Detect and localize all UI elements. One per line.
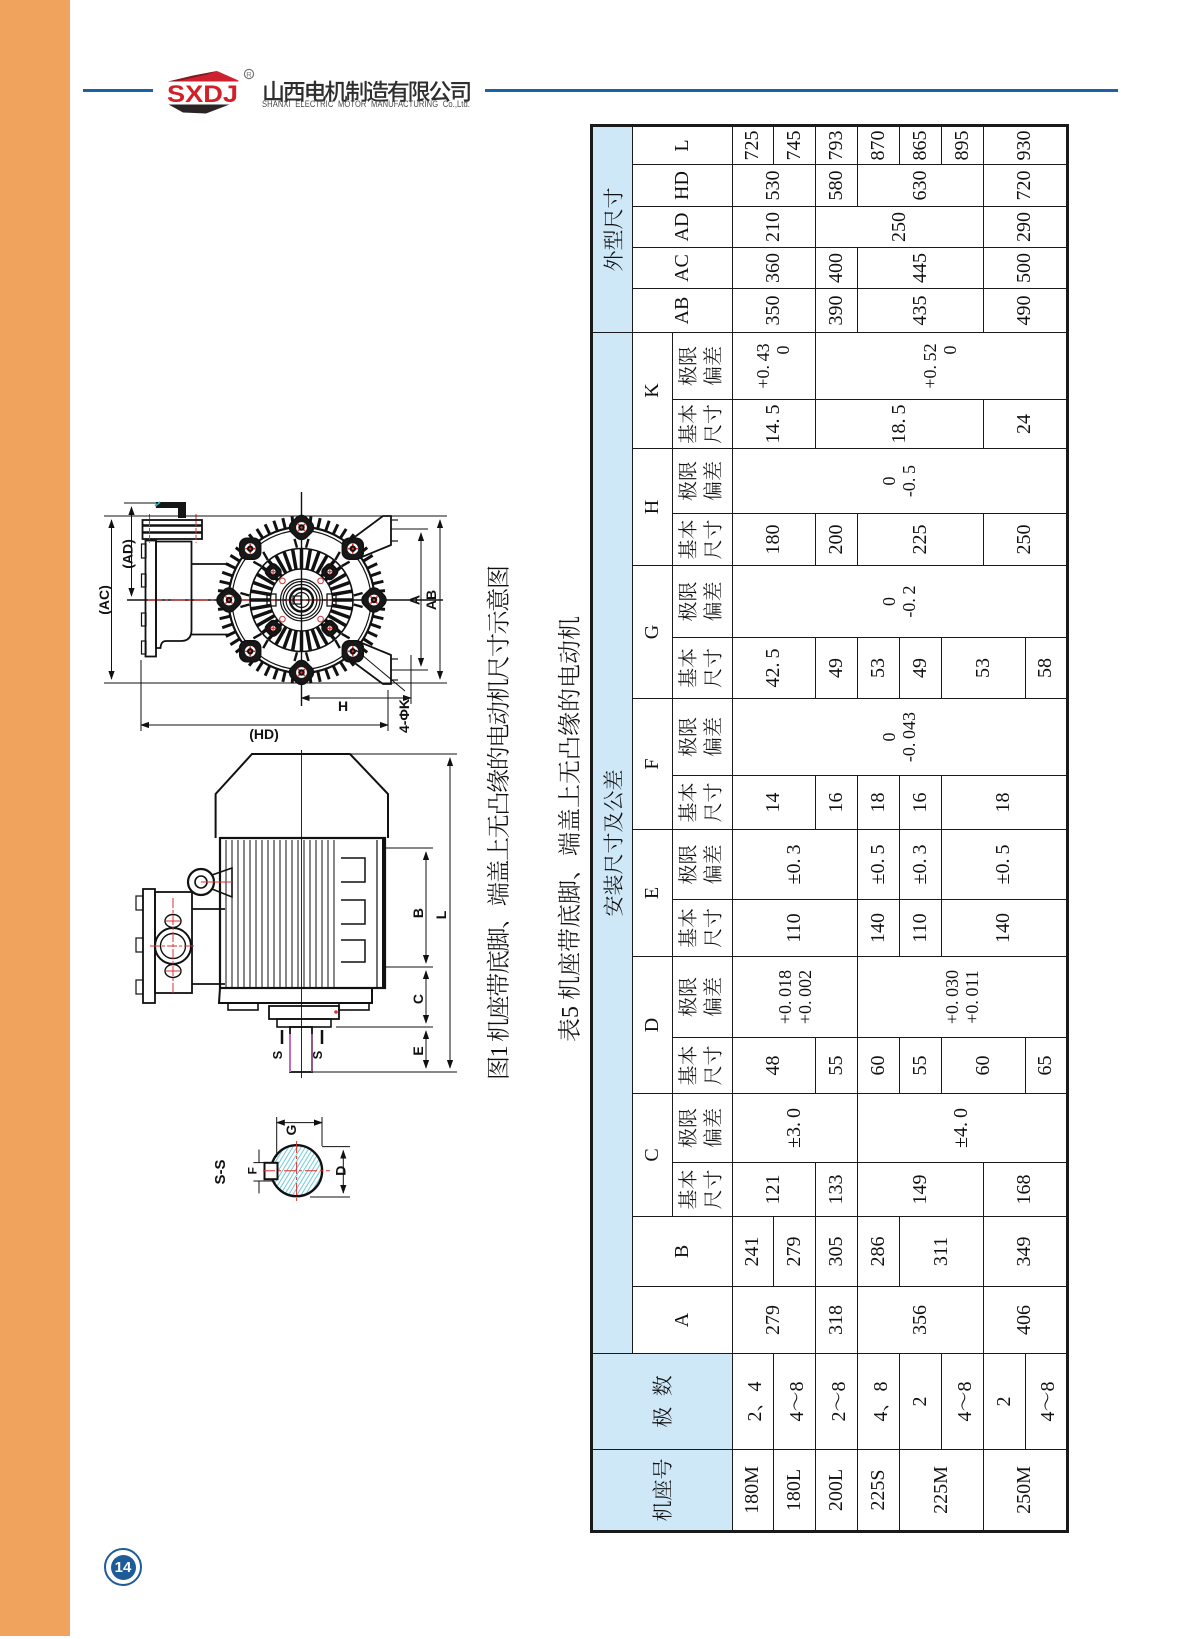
svg-text:S: S <box>310 1050 325 1059</box>
svg-text:(AC): (AC) <box>96 585 112 615</box>
svg-text:(HD): (HD) <box>249 726 279 742</box>
svg-text:AB: AB <box>423 590 439 610</box>
svg-text:H: H <box>338 698 348 714</box>
svg-text:A: A <box>407 595 423 605</box>
svg-text:B: B <box>410 908 426 918</box>
svg-text:SXDJ: SXDJ <box>167 81 238 108</box>
svg-text:(AD): (AD) <box>120 539 136 569</box>
svg-text:4-ΦK: 4-ΦK <box>396 699 412 733</box>
svg-text:R: R <box>246 70 252 79</box>
svg-text:E: E <box>410 1046 426 1055</box>
svg-text:C: C <box>410 994 426 1004</box>
svg-text:F: F <box>246 1167 260 1174</box>
svg-text:G: G <box>283 1124 299 1135</box>
svg-text:S: S <box>270 1050 285 1059</box>
svg-text:D: D <box>333 1166 349 1176</box>
svg-text:S-S: S-S <box>212 1159 229 1184</box>
svg-text:L: L <box>433 910 449 919</box>
